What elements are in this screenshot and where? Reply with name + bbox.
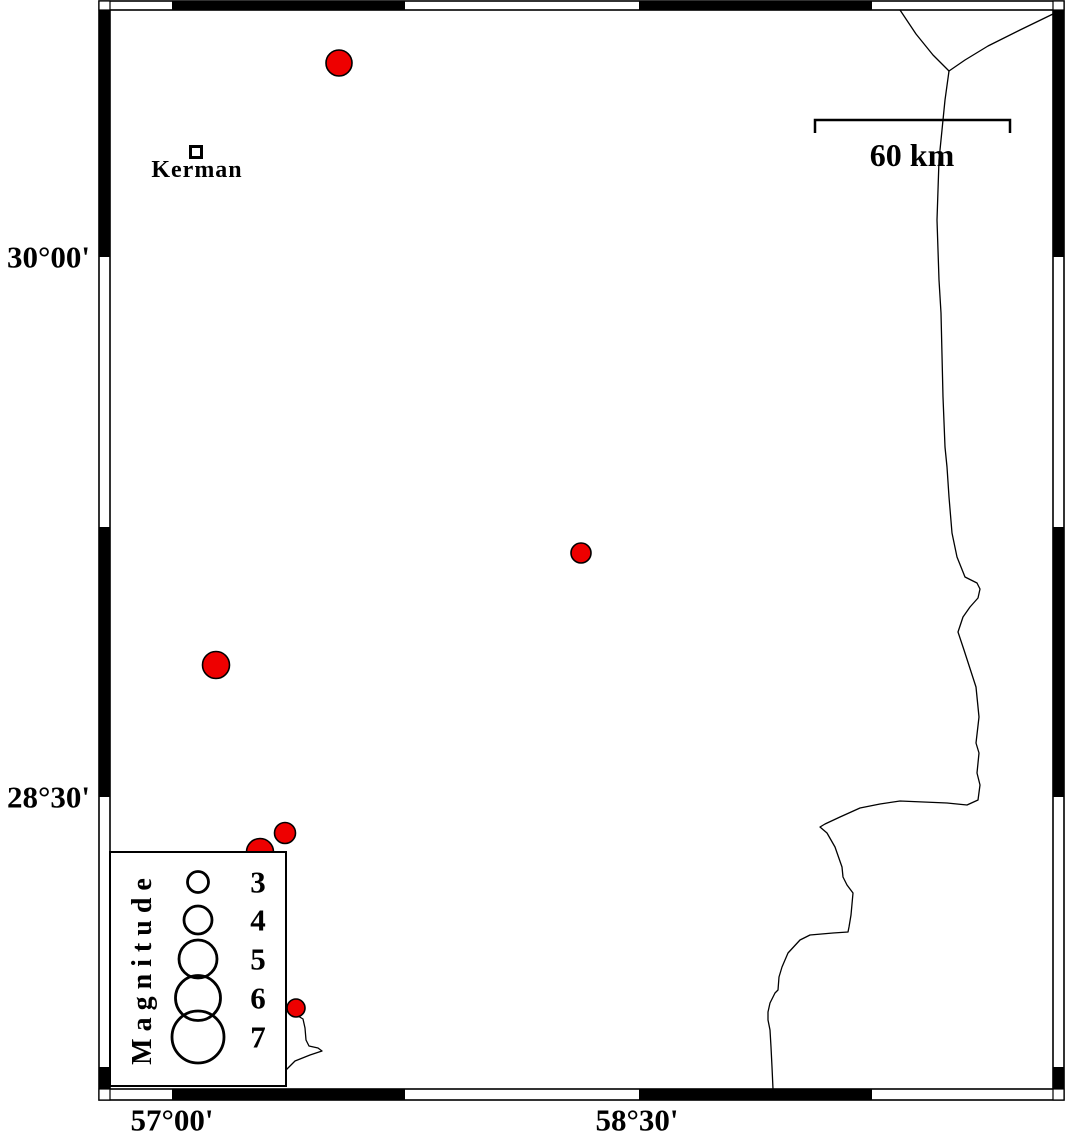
frame-left-black-segment-2 [99,527,110,797]
epicenter-dot-1 [326,50,352,76]
axis-label-lat-28-30: 28°30' [7,782,90,813]
frame-left-black-segment-3 [99,1067,110,1089]
legend-mag-label-5: 5 [250,944,266,975]
road-line-1 [900,10,949,71]
legend-mag-label-7: 7 [250,1022,266,1053]
frame-right-black-segment-1 [1053,10,1064,257]
city-marker-square [191,147,202,158]
frame-corner-4 [1053,1089,1064,1100]
legend-mag-label-3: 3 [250,867,266,898]
scale-bar-label: 60 km [870,139,954,171]
frame-corner-2 [1053,1,1064,10]
map-figure: 30°00' 28°30' 57°00' 58°30' Kerman 60 km… [0,0,1066,1137]
road-line-4 [286,1016,322,1070]
frame-right-black-segment-2 [1053,527,1064,797]
road-line-3 [768,71,980,1089]
legend-title: Magnitude [129,871,157,1065]
legend-mag-label-4: 4 [250,905,266,936]
axis-label-lat-30-00: 30°00' [7,242,90,273]
frame-right-black-segment-3 [1053,1067,1064,1089]
city-label-kerman: Kerman [151,158,242,182]
epicenter-dot-5 [275,823,296,844]
axis-label-lon-58-30: 58°30' [595,1105,678,1136]
frame-top-black-segment-2 [639,1,872,10]
frame-bottom-black-segment-2 [639,1089,872,1100]
epicenter-dot-6 [287,999,305,1017]
frame-corner-3 [99,1089,110,1100]
frame-top-black-segment-1 [172,1,405,10]
epicenter-dot-3 [203,652,230,679]
scale-bar [815,120,1010,133]
epicenter-dot-2 [571,543,591,563]
legend-mag-label-6: 6 [250,983,266,1014]
frame-left-black-segment-1 [99,10,110,257]
frame-bottom-black-segment-1 [172,1089,405,1100]
axis-label-lon-57-00: 57°00' [130,1105,213,1136]
road-line-2 [949,14,1053,71]
frame-corner-1 [99,1,110,10]
